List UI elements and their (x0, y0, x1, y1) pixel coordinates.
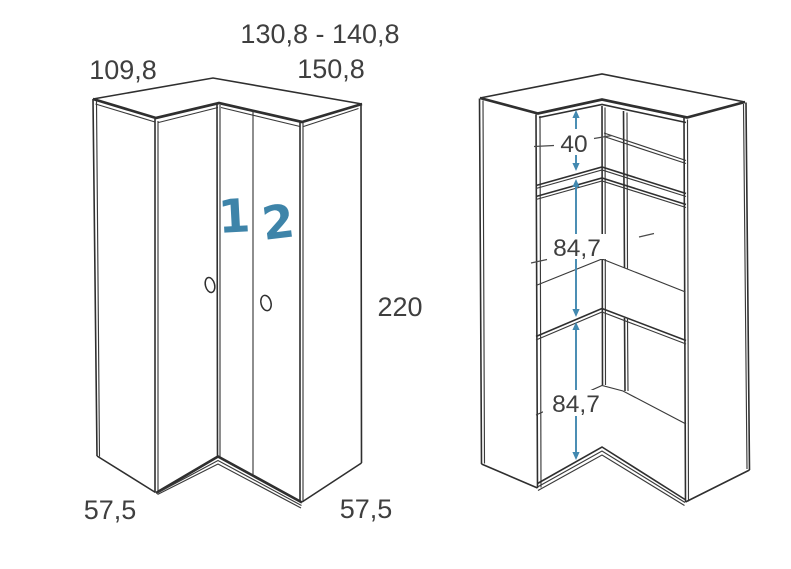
dim-height: 220 (377, 292, 422, 322)
dim-width-left: 109,8 (89, 55, 157, 85)
dim-depth-right: 57,5 (340, 494, 393, 524)
open-middle-shelf-back-edge (536, 259, 686, 292)
dim-top-section: 40 (560, 131, 587, 158)
closed-top-front-edges (93, 99, 362, 122)
closed-bottom-front-edge (156, 457, 302, 503)
closed-top-thickness-lines (96, 104, 359, 127)
closed-plinth-lines (157, 461, 302, 509)
open-right-top-shelf (604, 133, 686, 164)
diagram-svg: 1 2 130,8 - 140,8 109,8 150,8 220 57,5 5… (0, 0, 791, 569)
dim-bottom-section: 84,7 (552, 391, 600, 418)
open-vertical-thickness-lines (483, 101, 747, 502)
open-plinth-lines (538, 451, 686, 506)
arrow-up-icon (572, 322, 579, 330)
closed-wardrobe-drawing: 1 2 130,8 - 140,8 109,8 150,8 220 57,5 5… (84, 19, 423, 525)
dim-width-total-range: 130,8 - 140,8 (240, 19, 399, 49)
arrow-down-icon (572, 309, 579, 317)
open-top-front-edges (480, 98, 745, 118)
dim-depth-left: 57,5 (84, 495, 137, 525)
open-upper-shelf-thickness (536, 170, 686, 208)
closed-vertical-gap-lines (97, 101, 304, 502)
door1-number: 1 (217, 188, 252, 244)
door1-knob (204, 277, 217, 294)
open-vertical-edges (480, 99, 750, 503)
wardrobe-dimensions-diagram: 1 2 130,8 - 140,8 109,8 150,8 220 57,5 5… (0, 0, 791, 569)
dim-middle-section: 84,7 (553, 235, 601, 262)
arrow-up-icon (572, 179, 579, 187)
closed-vertical-edges (93, 99, 362, 502)
door2-knob (259, 294, 272, 312)
open-wardrobe-drawing: 40 84,7 84,7 (480, 74, 750, 506)
open-top-back-edges (480, 74, 745, 102)
arrow-down-icon (572, 163, 579, 171)
open-bottom-side-edges (482, 464, 750, 502)
dim-width-right: 150,8 (297, 54, 365, 84)
arrow-down-icon (572, 452, 579, 460)
door2-number: 2 (259, 193, 297, 250)
open-middle-shelf-thickness (536, 312, 686, 344)
